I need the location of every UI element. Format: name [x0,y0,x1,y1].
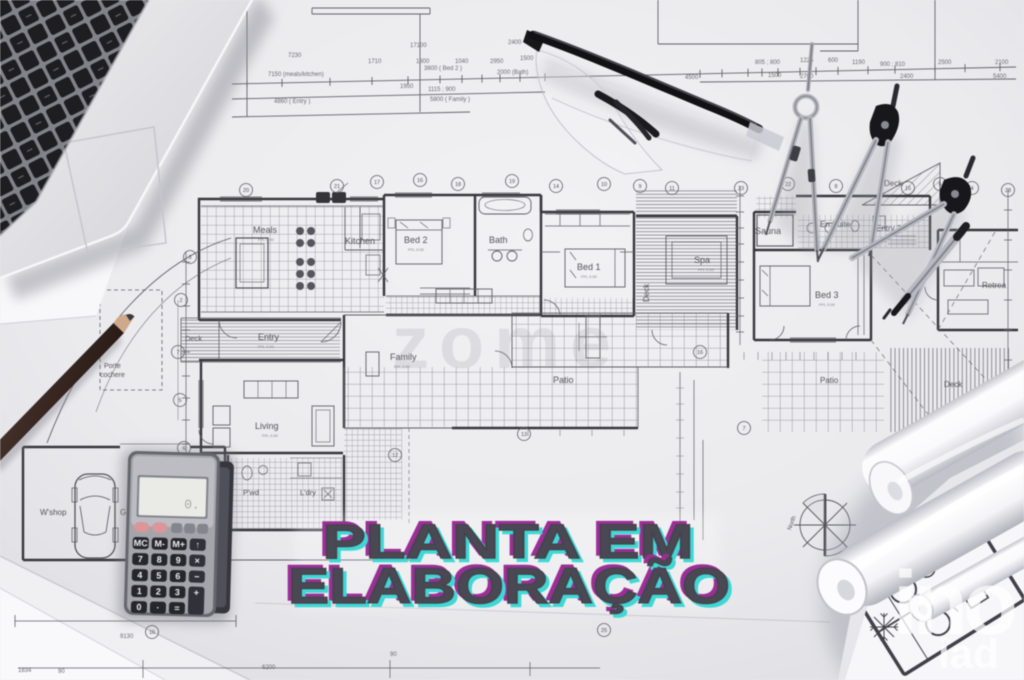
svg-text:5400: 5400 [993,74,1007,80]
svg-text:0: 0 [136,602,141,612]
svg-text:1500: 1500 [520,56,534,62]
svg-text:1115 ; 900: 1115 ; 900 [428,87,456,93]
svg-text:2100: 2100 [995,60,1009,66]
svg-text:2400: 2400 [508,40,522,46]
svg-text:9130: 9130 [120,634,134,640]
svg-text:5800 ( Family ): 5800 ( Family ) [430,97,470,103]
svg-text:iad: iad [938,630,999,677]
svg-text:1: 1 [137,586,142,596]
svg-text:16: 16 [149,630,155,636]
svg-text:2950: 2950 [490,59,504,65]
svg-text:×: × [194,556,200,566]
svg-text:4500: 4500 [685,75,699,81]
svg-text:14: 14 [553,184,559,190]
svg-text:2000 (Bath): 2000 (Bath) [497,70,528,76]
svg-text:Meals: Meals [253,225,278,235]
svg-text:Bed 2: Bed 2 [404,235,428,245]
svg-text:↑: ↑ [195,540,200,550]
svg-text:16: 16 [697,350,703,356]
svg-text:805 ; 800: 805 ; 800 [755,60,781,66]
svg-text:6: 6 [175,571,180,581]
svg-text:2: 2 [156,587,161,597]
svg-text:FFL 0.00: FFL 0.00 [258,344,275,349]
svg-text:MC: MC [134,538,149,548]
svg-text:L'dry: L'dry [300,488,316,497]
svg-text:9: 9 [176,555,181,565]
svg-text:18: 18 [455,182,461,188]
svg-text:Deck: Deck [944,380,963,389]
svg-text:3600 ( Bed 2 ): 3600 ( Bed 2 ) [424,66,462,72]
svg-text:13: 13 [521,432,527,438]
svg-text:·: · [156,603,159,613]
svg-text:7: 7 [138,554,143,564]
svg-text:0.: 0. [184,497,200,512]
svg-text:25: 25 [601,628,607,634]
svg-text:5: 5 [938,182,941,188]
svg-text:5: 5 [156,571,161,581]
svg-text:Bed 1: Bed 1 [577,262,601,272]
svg-text:Bath: Bath [489,235,508,245]
svg-text:10: 10 [601,182,607,188]
svg-text:7150 (meals/kitchen): 7150 (meals/kitchen) [268,72,324,78]
svg-text:FFL 0.00: FFL 0.00 [581,274,598,279]
svg-text:M+: M+ [172,539,185,549]
svg-text:zome: zome [392,301,621,384]
svg-text:−: − [194,572,200,582]
svg-text:7: 7 [176,350,179,356]
svg-text:Bed 3: Bed 3 [815,290,839,300]
svg-text:Kitchen: Kitchen [345,236,375,246]
svg-text:23: 23 [738,186,744,192]
svg-text:W'shop: W'shop [40,508,67,517]
svg-text:M-: M- [154,538,165,548]
svg-text:15: 15 [905,186,911,192]
svg-text:4860 ( Entry ): 4860 ( Entry ) [274,99,310,105]
svg-text:Entry: Entry [258,332,280,342]
svg-text:FFL 0.00: FFL 0.00 [698,267,715,272]
svg-text:1710: 1710 [368,59,382,65]
svg-text:2: 2 [179,298,182,304]
svg-text:=: = [174,603,180,613]
svg-text:Spa: Spa [694,255,710,265]
svg-text:2400: 2400 [900,74,914,80]
svg-text:8: 8 [157,555,162,565]
svg-text:9: 9 [638,184,641,190]
svg-text:17100: 17100 [410,43,427,49]
svg-text:cochere: cochere [100,372,125,379]
svg-text:20: 20 [243,188,249,194]
svg-text:1950: 1950 [400,84,414,90]
svg-text:FFL 0.00: FFL 0.00 [262,433,279,438]
svg-text:Deck: Deck [642,283,651,302]
svg-text:4: 4 [137,570,142,580]
svg-text:600: 600 [828,58,839,64]
svg-text:ELABORAÇÃO: ELABORAÇÃO [288,558,730,614]
svg-text:1834: 1834 [18,668,32,674]
svg-text:P'wd: P'wd [243,488,259,497]
svg-text:19: 19 [509,179,515,185]
svg-text:16: 16 [417,178,423,184]
svg-text:Retrea: Retrea [982,281,1007,290]
svg-text:1190: 1190 [852,60,866,66]
svg-text:3: 3 [175,587,180,597]
svg-text:FFL 0.00: FFL 0.00 [408,247,425,252]
svg-text:Patio: Patio [820,376,839,385]
svg-text:1500: 1500 [768,73,782,79]
svg-text:+: + [194,588,200,598]
svg-text:Living: Living [255,421,279,431]
svg-text:90: 90 [58,669,65,675]
svg-text:28: 28 [1005,188,1011,194]
svg-text:900 ; 810: 900 ; 810 [880,62,906,68]
svg-text:1800: 1800 [416,59,430,65]
svg-text:8: 8 [834,184,837,190]
svg-text:FFL 0.00: FFL 0.00 [258,237,275,242]
svg-text:FFL 0.00: FFL 0.00 [819,302,836,307]
svg-text:17: 17 [374,180,380,186]
svg-text:90: 90 [390,652,397,658]
svg-text:1040: 1040 [455,59,469,65]
svg-text:11: 11 [669,186,675,192]
svg-text:7230: 7230 [288,53,302,59]
svg-text:5: 5 [178,398,181,404]
svg-text:12: 12 [392,453,398,459]
svg-text:7: 7 [742,426,745,432]
svg-text:3: 3 [188,255,191,261]
svg-text:Deck: Deck [185,334,202,343]
svg-text:2500: 2500 [938,60,952,66]
svg-text:Porte: Porte [104,363,121,370]
svg-text:21: 21 [334,184,340,190]
